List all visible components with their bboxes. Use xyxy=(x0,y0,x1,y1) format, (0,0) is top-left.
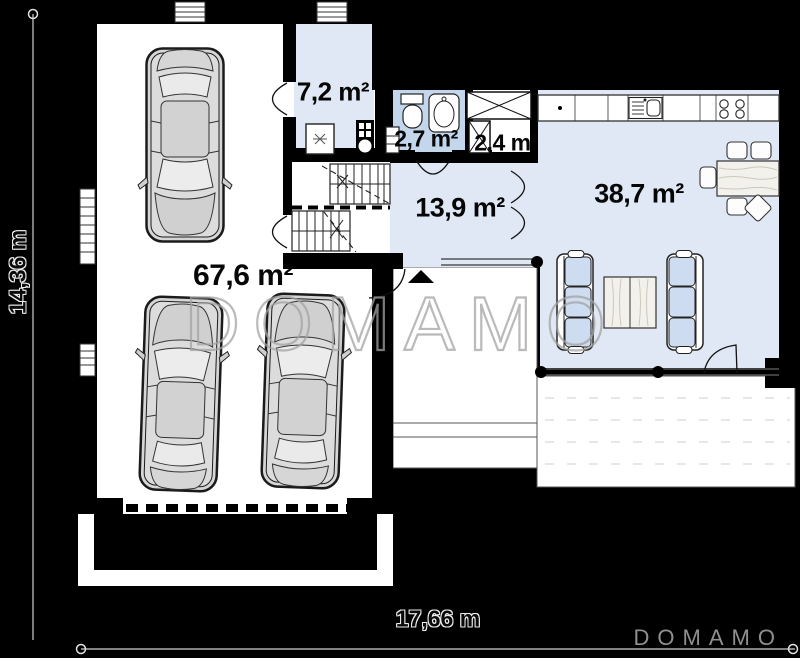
watermark-center: DOMAMO xyxy=(185,282,619,367)
dimension-label-width: 17,66 m xyxy=(396,606,480,633)
boiler xyxy=(356,120,374,155)
garage-door xyxy=(123,498,347,514)
car-top xyxy=(138,49,232,242)
floor-plan-page: DOMAMO DOMAMO 67,6 m² 7,2 m² 2,7 m² 2,4 … xyxy=(0,0,800,658)
driveway xyxy=(78,514,393,586)
kitchen-sink xyxy=(629,98,662,119)
floor-plan-drawing: DOMAMO DOMAMO xyxy=(0,0,800,658)
terrace xyxy=(537,376,795,487)
room-label-bathroom: 2,7 m² xyxy=(394,126,457,153)
dining-table xyxy=(717,161,779,196)
room-label-garage: 67,6 m² xyxy=(193,259,293,293)
room-label-wardrobe: 2,4 m² xyxy=(474,130,537,157)
room-label-hall: 13,9 m² xyxy=(415,193,505,224)
room-label-utility: 7,2 m² xyxy=(297,77,369,108)
sofa-right xyxy=(667,251,703,354)
toilet xyxy=(401,94,423,128)
floor-drain xyxy=(306,124,334,154)
kitchen-counter xyxy=(538,95,779,121)
dimension-label-height: 14,36 m xyxy=(5,230,32,314)
watermark-corner: DOMAMO xyxy=(634,625,783,650)
cabinet-knob xyxy=(558,106,562,110)
room-label-living-kitchen: 38,7 m² xyxy=(594,179,684,210)
